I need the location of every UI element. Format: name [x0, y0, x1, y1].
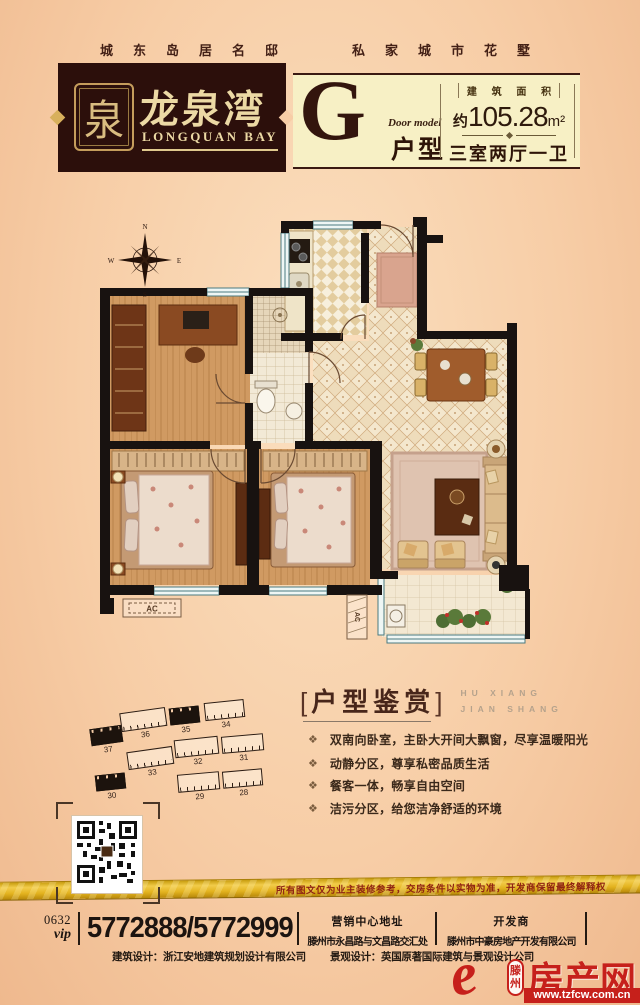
building-29: 29 — [177, 771, 221, 803]
compass-icon: N E S W — [108, 223, 181, 299]
bookshelf — [112, 305, 146, 431]
building-34: 34 — [204, 699, 247, 731]
area-code-block: 0632 vip — [44, 914, 71, 942]
pillow — [274, 519, 288, 550]
footer-contact: 0632 vip 5772888/5772999 营销中心地址 滕州市永昌路与文… — [44, 911, 594, 948]
slogan-right: 私家城市花墅 — [352, 40, 550, 59]
building-31: 31 — [221, 733, 265, 764]
building-28: 28 — [222, 768, 264, 798]
divider — [574, 84, 575, 158]
flower-bullet-icon: ❖ — [308, 779, 318, 792]
unit-info-panel: G Door model 户型 建 筑 面 积 约105.28m² 三室两厅一卫 — [293, 73, 580, 169]
dining-chair — [415, 379, 426, 396]
unit-type-label: 户型 — [391, 130, 445, 166]
room-layout: 三室两厅一卫 — [448, 140, 570, 166]
doormat — [377, 253, 417, 307]
media-brand-logo: e 滕 州 房产网 www.tzfcw.com.cn — [448, 944, 640, 1005]
site-plan: 37363534333231302928 — [85, 698, 280, 800]
building-35: 35 — [169, 706, 202, 736]
door-model-label: Door model — [388, 117, 441, 129]
lamp — [113, 472, 123, 482]
seal-icon: 泉 — [74, 83, 134, 151]
building-36: 36 — [119, 707, 169, 742]
wardrobe-tall — [259, 489, 270, 559]
computer — [183, 311, 209, 329]
project-name-cn: 龙泉湾 — [139, 79, 268, 135]
svg-text:S: S — [143, 291, 147, 299]
phone-numbers: 5772888/5772999 — [87, 912, 293, 945]
building-32: 32 — [174, 736, 221, 768]
list-item: ❖ 餐客一体，畅享自由空间 — [308, 777, 465, 794]
svg-text:AC: AC — [353, 612, 360, 622]
dining-chair — [415, 353, 426, 370]
brand-logo-block: 泉 龙泉湾 LONGQUAN BAY — [58, 63, 286, 172]
divider — [462, 133, 556, 138]
appreciation-header: [户型鉴赏] HU XIANG JIAN SHANG — [300, 682, 563, 719]
flower-bullet-icon: ❖ — [308, 757, 318, 770]
area-title: 建 筑 面 积 — [458, 83, 560, 98]
list-item: ❖ 洁污分区，给您洁净舒适的环境 — [308, 800, 502, 817]
appreciation-title: [户型鉴赏] — [300, 682, 446, 719]
sofa-pillow — [486, 530, 498, 544]
pillow — [124, 481, 139, 514]
building-37: 37 — [89, 725, 124, 756]
slogan-left: 城东岛居名邸 — [100, 40, 298, 59]
appreciation-subtitle: HU XIANG JIAN SHANG — [460, 685, 562, 717]
project-name-en: LONGQUAN BAY — [142, 129, 278, 151]
svg-text:W: W — [108, 257, 115, 265]
pillow — [124, 519, 139, 552]
dining-table — [427, 349, 485, 401]
city-badge: 滕 州 — [507, 959, 524, 996]
architecture-design: 建筑设计：浙江安地建筑规划设计有限公司 — [112, 949, 306, 964]
wash-basin — [286, 403, 302, 419]
sofa-pillow — [486, 470, 499, 484]
list-item: ❖ 双南向卧室，主卧大开间大飘窗，尽享温暖阳光 — [308, 731, 588, 748]
diamond-icon — [279, 110, 295, 126]
area-value: 约105.28m² — [448, 101, 570, 133]
poster-page: 城东岛居名邸 私家城市花墅 泉 龙泉湾 LONGQUAN BAY G Door … — [0, 0, 640, 1005]
flower-bullet-icon: ❖ — [308, 733, 318, 746]
dining-chair — [486, 353, 497, 370]
coffee-table — [435, 479, 479, 535]
toilet-tank — [255, 381, 277, 388]
lamp — [113, 564, 123, 574]
unit-letter: G — [299, 67, 366, 153]
ac-unit-2: AC — [347, 595, 367, 639]
diamond-icon — [50, 110, 66, 126]
qr-code — [72, 816, 142, 893]
disclaimer-text: 所有图文仅为业主装修参考，交房条件以实物为准，开发商保留最终解释权 — [276, 879, 606, 897]
ac-unit-1: AC — [123, 599, 181, 617]
svg-text:N: N — [142, 223, 147, 231]
bed2-quilt — [287, 477, 351, 563]
dining-chair — [486, 379, 497, 396]
e-swoosh-icon: e — [445, 942, 482, 1005]
wardrobe-tall — [236, 483, 247, 565]
marketing-center: 营销中心地址 滕州市永昌路与文昌路交汇处 — [306, 913, 428, 948]
list-item: ❖ 动静分区，尊享私密品质生活 — [308, 755, 490, 772]
divider — [440, 84, 441, 158]
building-33: 33 — [126, 746, 175, 780]
toilet — [257, 389, 275, 413]
flower-bullet-icon: ❖ — [308, 802, 318, 815]
pillow — [274, 483, 288, 514]
seal-character: 泉 — [84, 87, 124, 148]
floor-plan: AC AC N E S W — [95, 213, 545, 653]
svg-text:E: E — [177, 257, 181, 265]
building-30: 30 — [95, 773, 128, 802]
divider — [303, 721, 431, 722]
wardrobe-bedroom1 — [112, 451, 244, 471]
desk-chair — [185, 347, 205, 363]
svg-text:AC: AC — [146, 605, 158, 614]
website-url: www.tzfcw.com.cn — [524, 988, 640, 1003]
